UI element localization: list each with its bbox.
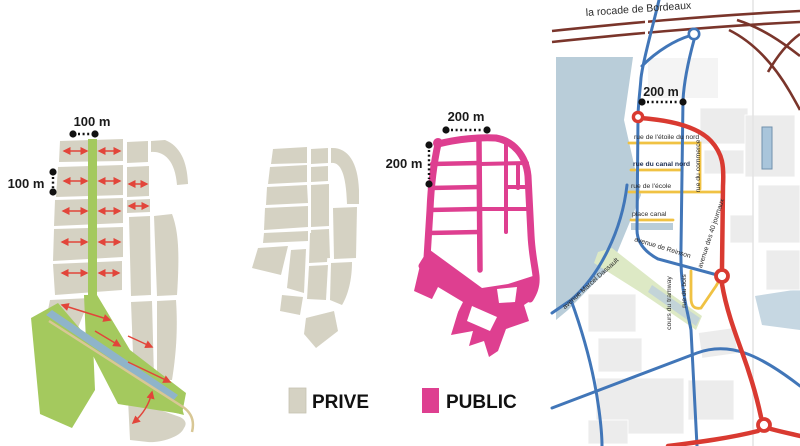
scale-dot xyxy=(69,130,76,137)
scale-label: 100 m xyxy=(74,114,111,129)
blue-terminus-node xyxy=(689,29,699,39)
building xyxy=(598,338,642,372)
public-street xyxy=(428,232,479,233)
city-block xyxy=(157,300,177,380)
street-label-bois: rue du bois xyxy=(681,274,688,308)
legend-label-prive: PRIVE xyxy=(312,392,369,413)
scale-label: 100 m xyxy=(8,176,45,191)
legend-label-public: PUBLIC xyxy=(446,392,517,413)
scale-dot xyxy=(425,180,432,187)
scale-dot xyxy=(49,188,56,195)
panel-morphology: 100 m 100 m xyxy=(8,114,193,442)
building xyxy=(758,185,800,243)
city-block xyxy=(330,262,352,305)
scale-dot xyxy=(679,98,686,105)
scale-dot xyxy=(483,126,490,133)
panel-public-diagram: 200 m 200 m xyxy=(386,109,537,357)
prive-swatch xyxy=(289,388,306,413)
scale-marker-100m-horizontal: 100 m xyxy=(69,114,110,138)
city-block xyxy=(268,165,307,184)
pond-water xyxy=(755,289,800,330)
scale-marker-100m-vertical: 100 m xyxy=(8,168,57,195)
city-block xyxy=(53,261,122,295)
city-block xyxy=(304,311,338,348)
building xyxy=(698,328,737,359)
public-plaza xyxy=(414,250,536,357)
city-block xyxy=(307,265,328,300)
legend-item-public: PUBLIC xyxy=(422,388,517,413)
scale-dot xyxy=(442,126,449,133)
building xyxy=(588,294,636,332)
public-street xyxy=(429,209,479,210)
public-street xyxy=(479,141,480,270)
panel-prive-diagram xyxy=(252,147,359,348)
public-street xyxy=(430,187,479,188)
street-label-commerce: rue du commerce xyxy=(695,139,702,192)
city-block xyxy=(263,231,308,243)
red-route-segment xyxy=(771,429,800,436)
city-block xyxy=(333,207,357,259)
scale-dot xyxy=(91,130,98,137)
scale-marker-200m-horizontal: 200 m xyxy=(442,109,490,134)
street-label-tramway: cours du tramway xyxy=(666,276,673,330)
city-block xyxy=(129,216,151,296)
city-block xyxy=(311,184,329,227)
public-swatch xyxy=(422,388,439,413)
city-block xyxy=(127,141,148,163)
scale-dot xyxy=(425,141,432,148)
red-node xyxy=(716,270,728,282)
city-block xyxy=(280,295,303,315)
city-block xyxy=(266,185,308,205)
public-node xyxy=(433,138,443,148)
city-block xyxy=(151,140,188,185)
street-label-ecole: rue de l'école xyxy=(631,183,671,190)
city-block xyxy=(309,232,329,263)
blue-bar-marker xyxy=(762,127,772,169)
city-block xyxy=(311,148,328,164)
legend-item-prive: PRIVE xyxy=(289,388,369,413)
red-node xyxy=(758,419,770,431)
scale-dot xyxy=(49,168,56,175)
city-block xyxy=(127,166,149,197)
rocade-label: la rocade de Bordeaux xyxy=(585,0,692,19)
public-street xyxy=(432,163,479,164)
panel-city-map: la rocade de Bordeaux rue de l'étoile du… xyxy=(552,0,800,446)
scale-marker-200m-vertical: 200 m xyxy=(386,141,433,187)
building xyxy=(730,215,754,243)
street-label-etoile: rue de l'étoile du nord xyxy=(634,134,699,141)
scale-label: 200 m xyxy=(386,156,423,171)
city-block xyxy=(264,206,308,230)
building xyxy=(588,420,628,444)
street-label-canal-nord: rue du canal nord xyxy=(633,161,690,168)
green-spine xyxy=(88,139,97,297)
scale-label: 200 m xyxy=(643,85,678,99)
urban-analysis-figure: 100 m 100 m xyxy=(0,0,800,446)
scale-label: 200 m xyxy=(448,109,485,124)
scale-dot xyxy=(638,98,645,105)
city-block xyxy=(311,166,328,182)
city-block xyxy=(271,147,307,164)
city-block xyxy=(331,148,359,204)
legend: PRIVE PUBLIC xyxy=(289,388,517,413)
city-block xyxy=(154,214,178,296)
building xyxy=(766,250,800,290)
red-node xyxy=(633,112,642,121)
city-block xyxy=(287,249,306,293)
street-label-place-canal: place canal xyxy=(632,211,667,218)
plaza-block xyxy=(497,287,517,303)
city-block xyxy=(252,246,288,275)
